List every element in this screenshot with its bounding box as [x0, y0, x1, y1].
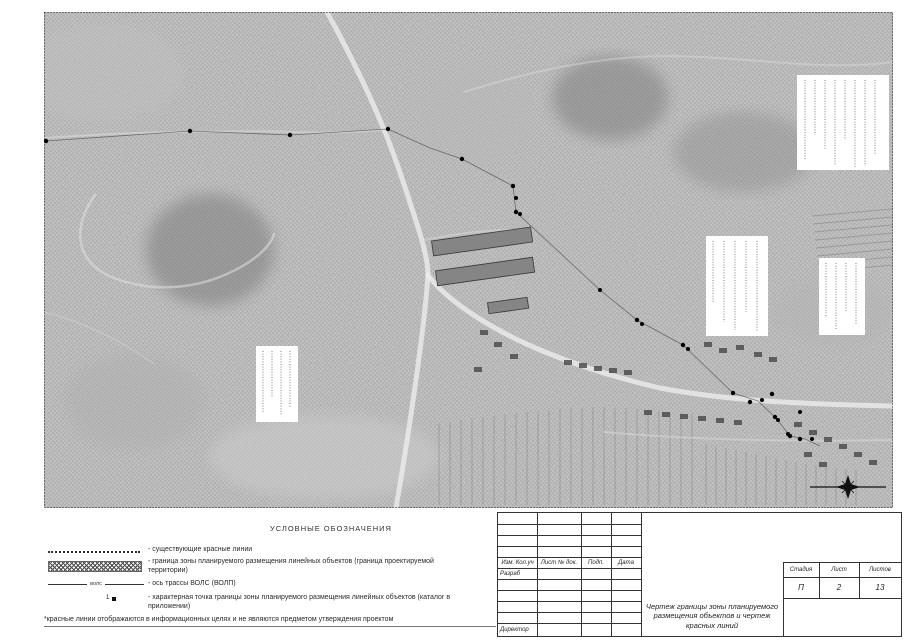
red-lines-symbol [48, 551, 140, 553]
stamp-col-podp: Подп. [581, 557, 611, 568]
vols-axis-symbol: волс [48, 581, 144, 588]
title-block: Изм. Кол.уч Лист № док. Подп. Дата Разра… [497, 512, 902, 637]
legend: УСЛОВНЫЕ ОБОЗНАЧЕНИЯ - существующие крас… [44, 515, 499, 637]
drawing-sheet: УСЛОВНЫЕ ОБОЗНАЧЕНИЯ - существующие крас… [0, 0, 905, 640]
legend-item-label: - характерная точка границы зоны планиру… [148, 594, 480, 612]
aerial-basemap [44, 12, 893, 508]
point-dot-icon [112, 597, 116, 601]
sheets-value: 13 [859, 577, 901, 598]
sheet-label: Лист [819, 562, 859, 577]
legend-item-label: - существующие красные линии [148, 546, 478, 555]
stage-label: Стадия [783, 562, 819, 577]
vols-symbol-label: волс [90, 581, 102, 588]
stamp-col-list-ndok: Лист № док. [537, 557, 581, 568]
zone-boundary-symbol [48, 561, 142, 572]
stamp-director: Директор [498, 623, 543, 636]
legend-footnote: *красные линии отображаются в информацио… [44, 616, 393, 625]
legend-title: УСЛОВНЫЕ ОБОЗНАЧЕНИЯ [270, 524, 392, 534]
legend-divider-line [44, 626, 496, 627]
point-number: 1 [106, 595, 109, 603]
sheet-value: 2 [819, 577, 859, 598]
annotation-box-middle [706, 236, 768, 336]
legend-item-label: - ось трассы ВОЛС (ВОЛП) [148, 580, 478, 589]
stamp-col-data: Дата [611, 557, 641, 568]
annotation-box-top-right [797, 75, 889, 170]
annotation-box-left [256, 346, 298, 422]
legend-item-label: - граница зоны планируемого размещения л… [148, 558, 466, 576]
map-drawing [44, 12, 893, 508]
stamp-razrab: Разраб [498, 568, 539, 579]
sheets-label: Листов [859, 562, 901, 577]
annotation-box-right [819, 258, 865, 335]
stage-value: П [783, 577, 819, 598]
drawing-title: Чертеж границы зоны планируемого размеще… [643, 597, 781, 635]
stamp-col-izm: Изм. Кол.уч [498, 557, 537, 568]
characteristic-point-symbol: 1 [106, 595, 116, 603]
